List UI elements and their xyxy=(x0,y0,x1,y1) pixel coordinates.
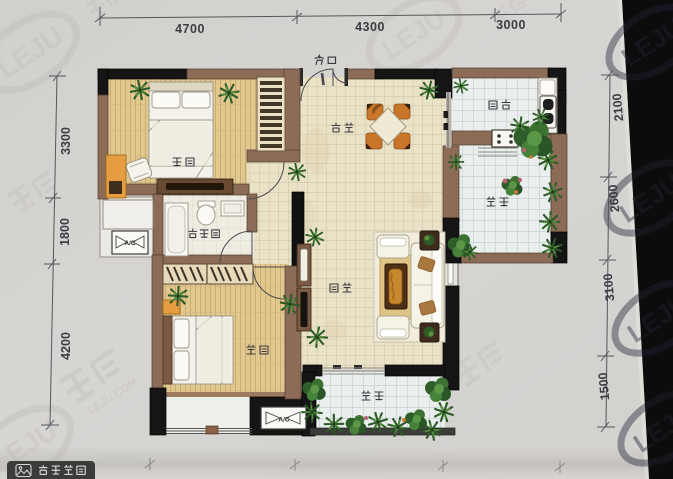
svg-text:3100: 3100 xyxy=(601,273,617,302)
svg-text:3300: 3300 xyxy=(59,127,73,155)
svg-text:4200: 4200 xyxy=(59,332,73,360)
svg-text:3000: 3000 xyxy=(496,18,526,32)
svg-text:2600: 2600 xyxy=(606,184,622,213)
svg-text:1800: 1800 xyxy=(58,218,72,246)
svg-text:1500: 1500 xyxy=(596,372,612,401)
svg-text:A/C: A/C xyxy=(278,417,290,424)
svg-text:4300: 4300 xyxy=(355,20,385,34)
svg-text:2100: 2100 xyxy=(610,93,626,122)
svg-text:4700: 4700 xyxy=(175,22,205,36)
svg-text:A/C: A/C xyxy=(124,240,136,247)
